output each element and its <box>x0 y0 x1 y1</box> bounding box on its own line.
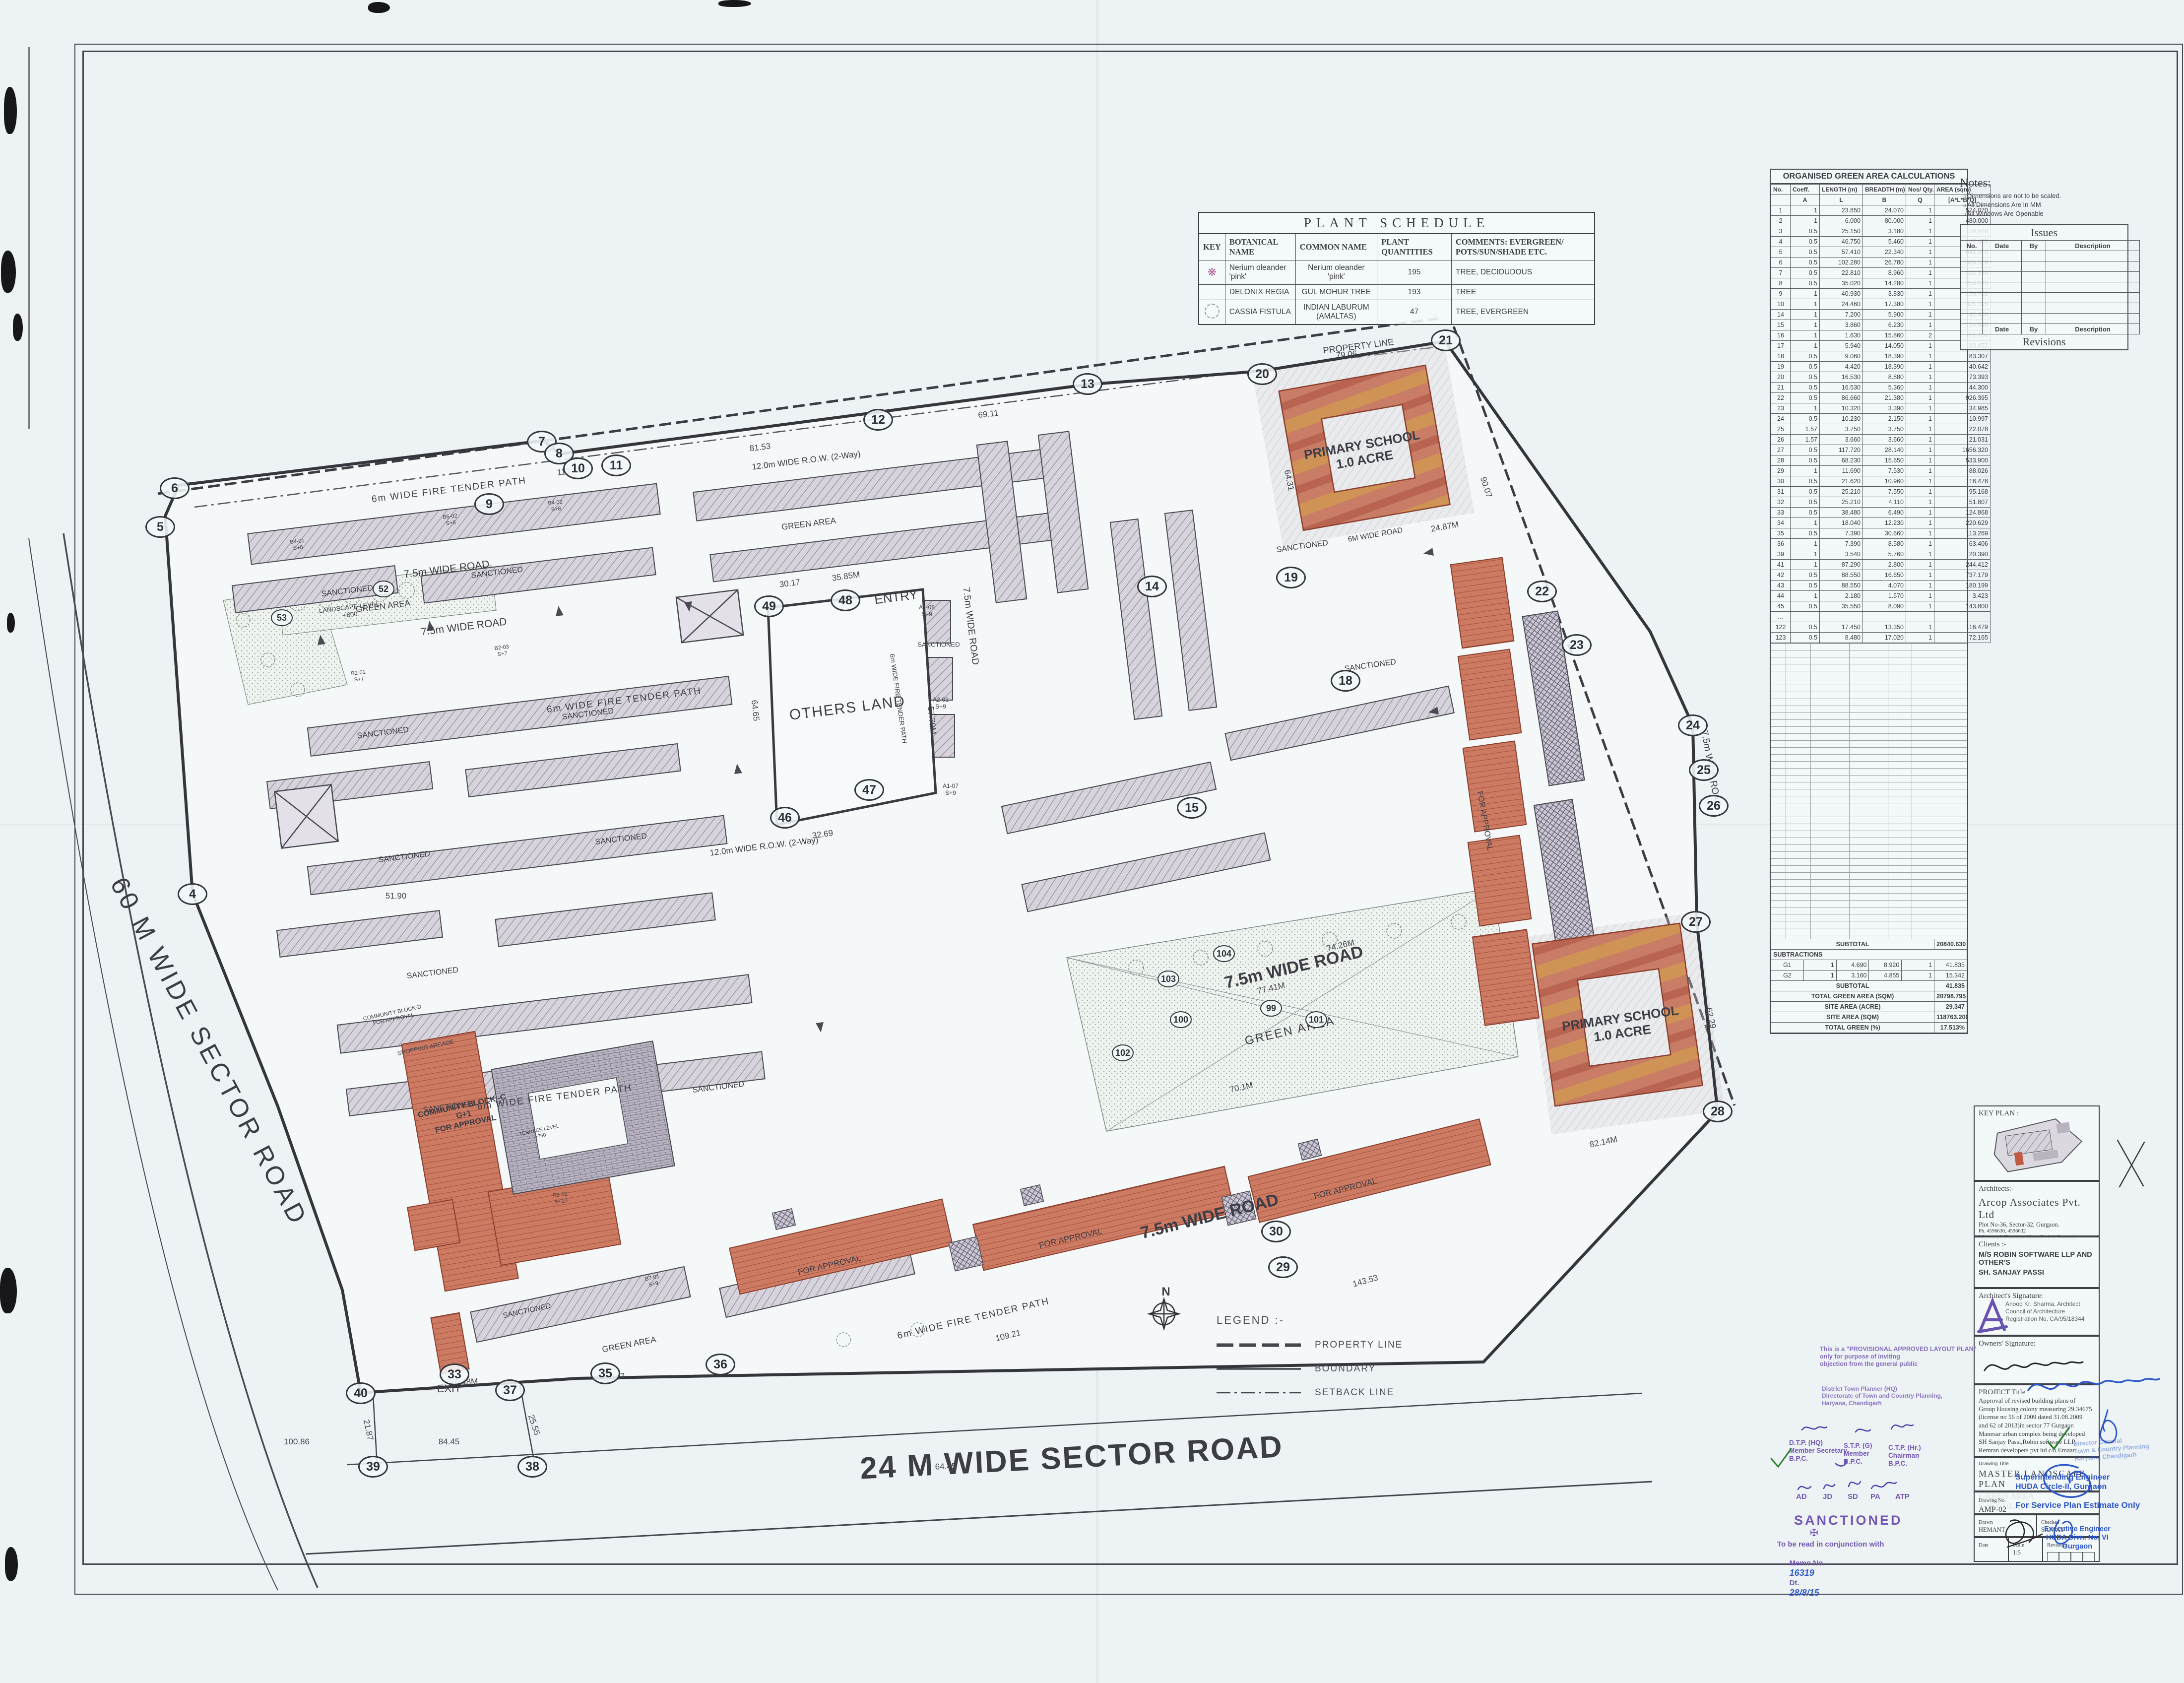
boundary-node: 52 <box>373 581 394 597</box>
green-calc-cell: 57.410 <box>1820 247 1863 258</box>
key-plan-map <box>1985 1118 2089 1172</box>
green-calc-cell: 0.5 <box>1791 445 1820 455</box>
green-calc-cell: 6 <box>1771 258 1791 268</box>
green-calc-cell: 4.690 <box>1836 960 1869 971</box>
green-calc-cell: 3.160 <box>1836 971 1869 981</box>
green-calc-cell: 0.5 <box>1791 633 1820 643</box>
memo-stamp-line1: To be read in conjunction with <box>1777 1540 1884 1549</box>
green-calc-cell: 1 <box>1906 455 1934 466</box>
green-calc-cell: 1 <box>1791 205 1820 216</box>
green-calc-cell: 27 <box>1771 445 1791 455</box>
legend-setback-line-sample <box>1217 1390 1301 1396</box>
issues-empty-cell <box>1961 261 1983 272</box>
green-calc-cell: 20798.795 <box>1934 991 1967 1002</box>
green-calc-cell: 34.985 <box>1934 403 1991 414</box>
green-calc-row: 80.535.02014.2801250.043 <box>1771 278 1991 289</box>
green-calc-cell: 31 <box>1771 487 1791 497</box>
green-calc-cell: 4.420 <box>1820 362 1863 372</box>
green-calc-cell: 1 <box>1906 622 1934 633</box>
drawn-label: Drawn <box>1979 1520 1993 1525</box>
legend-item: PROPERTY LINE <box>1217 1340 1445 1351</box>
green-calc-cell: 4 <box>1771 237 1791 247</box>
green-calc-cell: 23.850 <box>1820 205 1863 216</box>
revision-cell <box>2083 1552 2095 1562</box>
green-calc-total-row: SITE AREA (ACRE)29.347 <box>1771 1002 1967 1012</box>
green-calc-cell: SUBTOTAL <box>1771 981 1934 991</box>
green-calc-cell: 72.165 <box>1934 633 1991 643</box>
green-calc-cell: 1 <box>1791 310 1820 320</box>
green-calc-cell: 5.900 <box>1863 310 1906 320</box>
plan-label: SANCTIONED <box>917 642 960 649</box>
green-calc-cell: 1 <box>1906 528 1934 539</box>
green-calc-cell: 1 <box>1906 237 1934 247</box>
green-calc-cell: 8.480 <box>1820 633 1863 643</box>
green-calc-row: 1611.63015.860251.704 <box>1771 330 1991 341</box>
green-calc-cell: 35.550 <box>1820 601 1863 612</box>
boundary-node: 10 <box>563 457 593 479</box>
green-calc-cell: 116.479 <box>1934 622 1991 633</box>
green-calc-cell: 1 <box>1906 591 1934 601</box>
boundary-node: 22 <box>1527 581 1557 602</box>
green-calc-cell: 3.860 <box>1820 320 1863 330</box>
green-calc-cell: 1 <box>1906 362 1934 372</box>
dimension-label: 64.65 <box>749 700 761 721</box>
supdt-stamp-line: Superintending Engineer <box>2015 1473 2110 1482</box>
dt-handwritten: 28/8/15 <box>1790 1588 1819 1598</box>
green-calc-cell: 0.5 <box>1791 601 1820 612</box>
green-calc-cell: 40.930 <box>1820 289 1863 299</box>
green-calc-row: 40.546.7505.4601127.655 <box>1771 237 1991 247</box>
green-calc-cell: 5.360 <box>1863 383 1906 393</box>
green-calc-cell: 8.920 <box>1869 960 1902 971</box>
revision-cell <box>2059 1552 2071 1562</box>
boundary-node: 26 <box>1699 795 1729 817</box>
green-calc-cell: 1 <box>1791 403 1820 414</box>
plant-schedule-cell: 193 <box>1377 285 1452 300</box>
green-calc-cell: 88.550 <box>1820 570 1863 581</box>
plant-schedule-cell: TREE, EVERGREEN <box>1451 300 1595 325</box>
green-calc-row: 300.521.62010.9601118.478 <box>1771 476 1991 487</box>
district-town-planner-stamp: District Town Planner (HQ)Directorate of… <box>1822 1385 1942 1407</box>
green-calc-row: 9140.9303.8301156.762 <box>1771 289 1991 299</box>
green-calc-cell: 3.180 <box>1863 226 1906 237</box>
legend-boundary-line-sample <box>1217 1366 1301 1372</box>
green-calc-cell: 8.580 <box>1863 539 1906 549</box>
issues-header-row: No.DateByDescription <box>1961 241 2140 251</box>
green-calc-cell: 0.5 <box>1791 351 1820 362</box>
dimension-label: 100.86 <box>284 1437 310 1447</box>
green-calc-cell: 95.168 <box>1934 487 1991 497</box>
plant-schedule-row: CASSIA FISTULAINDIAN LABURUM (AMALTAS)47… <box>1199 300 1595 325</box>
green-calc-cell: 13.350 <box>1863 622 1906 633</box>
green-calc-cell: 118763.200 <box>1934 1012 1967 1023</box>
issues-empty-cell <box>1961 314 1983 324</box>
green-calc-cell: 1.57 <box>1791 435 1820 445</box>
green-calc-cell: 1 <box>1906 289 1934 299</box>
owners-signature-label: Owners' Signature: <box>1979 1340 2095 1348</box>
green-calc-row: 4412.1801.57013.423 <box>1771 591 1991 601</box>
green-calc-cell: 10.960 <box>1863 476 1906 487</box>
green-calc-cell: 18.040 <box>1820 518 1863 528</box>
green-calc-cell: 1 <box>1906 372 1934 383</box>
executive-engineer-stamp: Executive EngineerHUDA Divn. No. VIGurga… <box>2044 1525 2111 1551</box>
green-calc-cell: SITE AREA (SQM) <box>1771 1012 1934 1023</box>
green-calc-cell: 6.490 <box>1863 508 1906 518</box>
green-calc-cell: 33 <box>1771 508 1791 518</box>
project-title-line: Approval of revised building plans of <box>1979 1397 2095 1405</box>
boundary-node: 15 <box>1177 797 1207 819</box>
issues-empty-cell <box>2046 293 2140 303</box>
green-calc-cell: 0.5 <box>1791 372 1820 383</box>
green-calc-unread-rows <box>1771 643 1967 939</box>
green-calc-row: 200.516.5308.880173.393 <box>1771 372 1991 383</box>
green-calc-cell: 8.090 <box>1863 601 1906 612</box>
green-calc-cell: 17.380 <box>1863 299 1906 310</box>
green-calc-table: No.Coeff.LENGTH (m)BREADTH (m)Nos/ Qty.A… <box>1771 184 1991 643</box>
green-calc-cell: 1 <box>1906 226 1934 237</box>
green-calc-cell: 3.423 <box>1934 591 1991 601</box>
green-calc-total-row: TOTAL GREEN (%)17.513% <box>1771 1023 1967 1033</box>
issues-empty-row <box>1961 293 2140 303</box>
green-calc-cell: 0.5 <box>1791 508 1820 518</box>
green-calc-cell: 32 <box>1771 497 1791 508</box>
green-calc-cell: 51.807 <box>1934 497 1991 508</box>
green-calc-cell: 8.880 <box>1863 372 1906 383</box>
plan-label: B4-02 S+8 <box>548 499 564 514</box>
issues-empty-cell <box>2046 251 2140 261</box>
plant-schedule-cell: INDIAN LABURUM (AMALTAS) <box>1295 300 1377 325</box>
issues-empty-cell <box>2022 272 2046 282</box>
green-calc-cell: 2.180 <box>1820 591 1863 601</box>
green-calc-cell: 25.210 <box>1820 497 1863 508</box>
drawn-value: HEMANT <box>1979 1526 2032 1534</box>
green-calc-row: 350.57.39030.6601113.269 <box>1771 528 1991 539</box>
green-calc-cell: 7.390 <box>1820 539 1863 549</box>
green-calc-cell: 1 <box>1791 518 1820 528</box>
plant-schedule-column-header: BOTANICAL NAME <box>1225 234 1295 260</box>
exec-stamp-line: HUDA Divn. No. VI <box>2044 1534 2111 1542</box>
green-calc-cell: 2 <box>1906 330 1934 341</box>
green-calc-cell: 44 <box>1771 591 1791 601</box>
green-calc-cell: 39 <box>1771 549 1791 560</box>
green-calc-cell: 1.570 <box>1863 591 1906 601</box>
green-calc-cell: 86.660 <box>1820 393 1863 403</box>
firm-phone: Ph. 4596630, 4596632 <box>1979 1229 2095 1234</box>
boundary-node: 13 <box>1073 373 1102 395</box>
green-calc-cell: 1 <box>1906 435 1934 445</box>
plant-schedule-column-header: PLANT QUANTITIES <box>1377 234 1452 260</box>
memo-no-label: Memo No. <box>1790 1559 1825 1567</box>
green-calc-cell: 87.290 <box>1820 560 1863 570</box>
architects-label: Architects:- <box>1979 1185 2095 1193</box>
green-calc-cell: 10.230 <box>1820 414 1863 424</box>
dimension-label: 84.45 <box>439 1437 460 1447</box>
green-calc-cell: 9.060 <box>1820 351 1863 362</box>
firm-name: Arcop Associates Pvt. Ltd <box>1979 1196 2095 1221</box>
green-calc-cell: 1 <box>1771 205 1791 216</box>
green-calc-cell: 5 <box>1771 247 1791 258</box>
green-calc-cell: 3.750 <box>1820 424 1863 435</box>
green-calc-cell: 0.5 <box>1791 414 1820 424</box>
green-calc-cell: 1 <box>1791 591 1820 601</box>
officer-initials: ATP <box>1895 1492 1910 1501</box>
green-calc-row: 1513.8606.230124.048 <box>1771 320 1991 330</box>
legend-item-label: SETBACK LINE <box>1315 1387 1394 1398</box>
legend-item-label: BOUNDARY <box>1315 1363 1376 1374</box>
green-calc-cell: 18 <box>1771 351 1791 362</box>
boundary-node: 14 <box>1137 576 1167 597</box>
green-calc-cell: 1 <box>1906 414 1934 424</box>
green-calc-row: 1417.2005.900142.480 <box>1771 310 1991 320</box>
green-calc-cell: 1 <box>1906 539 1934 549</box>
green-calc-cell: 15 <box>1771 320 1791 330</box>
boundary-node: 27 <box>1681 911 1711 933</box>
green-calc-cell: SUBTRACTIONS <box>1771 950 1967 960</box>
green-calc-cell: 0.5 <box>1791 570 1820 581</box>
plant-key-icon: ❋ <box>1199 260 1225 285</box>
green-calc-cell: 34 <box>1771 518 1791 528</box>
green-calc-total-row: SUBTOTAL41.835 <box>1771 981 1967 991</box>
green-calc-column-header: B <box>1863 195 1906 205</box>
green-calc-cell: 28.140 <box>1863 445 1906 455</box>
green-calc-cell: 40.642 <box>1934 362 1991 372</box>
revisions-column-header: By <box>2022 324 2046 334</box>
sanctioned-stamp: SANCTIONED <box>1794 1512 1903 1528</box>
green-calc-cell: 45 <box>1771 601 1791 612</box>
green-calc-cell: 1 <box>1791 549 1820 560</box>
green-calc-row: 1715.94014.050183.457 <box>1771 341 1991 351</box>
green-calc-cell: 41 <box>1771 560 1791 570</box>
boundary-node: 25 <box>1689 759 1719 781</box>
green-calc-cell <box>1791 612 1820 622</box>
issues-column-header: By <box>2022 241 2046 251</box>
issues-column-header: No. <box>1961 241 1983 251</box>
green-calc-row: 60.5102.28026.78011369.529 <box>1771 258 1991 268</box>
green-calc-cell: 1 <box>1791 299 1820 310</box>
green-calc-cell: … <box>1771 612 1791 622</box>
green-calc-cell: 124.868 <box>1934 508 1991 518</box>
boundary-node: 53 <box>271 609 293 626</box>
architect-stamp-name: Anoop Kr. Sharma, Architect <box>2005 1300 2095 1308</box>
green-calc-cell: 21.380 <box>1863 393 1906 403</box>
green-calc-cell: 1 <box>1906 268 1934 278</box>
green-calc-cell: 22.078 <box>1934 424 1991 435</box>
green-calc-total-row: SITE AREA (SQM)118763.200 <box>1771 1012 1967 1023</box>
exec-stamp-line: Gurgaon <box>2044 1543 2111 1551</box>
issues-empty-row <box>1961 282 2140 293</box>
green-calc-cell: 1 <box>1791 341 1820 351</box>
drawing-sheet: 60 M WIDE SECTOR ROAD24 M WIDE SECTOR RO… <box>0 0 2184 1683</box>
green-calc-cell: 1 <box>1906 341 1934 351</box>
plant-schedule-cell: TREE, DECIDUDOUS <box>1451 260 1595 285</box>
green-calc-cell: 88.550 <box>1820 581 1863 591</box>
plan-label: A1-08 S+9 <box>919 604 935 618</box>
project-title-label: PROJECT Title <box>1979 1388 2095 1397</box>
green-calc-cell: 46.750 <box>1820 237 1863 247</box>
green-calc-cell: 102.280 <box>1820 258 1863 268</box>
issues-empty-cell <box>1961 303 1983 314</box>
green-calc-cell: 41.835 <box>1934 981 1967 991</box>
green-calc-cell: 0.5 <box>1791 383 1820 393</box>
green-calc-cell: 68.230 <box>1820 455 1863 466</box>
green-calc-row: 1230.58.48017.020172.165 <box>1771 633 1991 643</box>
green-calc-cell: 28 <box>1771 455 1791 466</box>
boundary-node: 47 <box>854 779 884 801</box>
plant-schedule-cell: CASSIA FISTULA <box>1225 300 1295 325</box>
green-calc-cell: 0.5 <box>1791 497 1820 508</box>
green-calc-cell: 35.020 <box>1820 278 1863 289</box>
green-calc-column-header: Nos/ Qty. <box>1906 185 1934 195</box>
green-calc-cell: 1 <box>1906 508 1934 518</box>
revisions-title: Revisions <box>1961 334 2127 349</box>
green-calc-row: 34118.04012.2301220.629 <box>1771 518 1991 528</box>
green-calc-row: 23110.3203.390134.985 <box>1771 403 1991 414</box>
green-calc-cell: 0.5 <box>1791 622 1820 633</box>
plan-label: B4-01 S+8 <box>290 538 306 552</box>
green-calc-cell: 5.460 <box>1863 237 1906 247</box>
green-calc-cell: 1 <box>1906 560 1934 570</box>
dtp-stamp-line: Directorate of Town and Country Planning… <box>1822 1392 1942 1399</box>
green-calc-cell: 7.200 <box>1820 310 1863 320</box>
green-calc-cell: 30 <box>1771 476 1791 487</box>
green-calc-row: 10124.46017.3801425.115 <box>1771 299 1991 310</box>
owners-signature-box: Owners' Signature: <box>1974 1336 2100 1384</box>
green-calc-cell: 20 <box>1771 372 1791 383</box>
legend-title: LEGEND :- <box>1217 1314 1445 1327</box>
provisional-stamp-line: This is a "PROVISIONAL APPROVED LAYOUT P… <box>1820 1346 1977 1353</box>
plan-label: B5-02 S+8 <box>443 513 458 527</box>
green-calc-cell: 16.530 <box>1820 383 1863 393</box>
green-calc-cell: 1 <box>1791 539 1820 549</box>
green-calc-cell: 180.199 <box>1934 581 1991 591</box>
boundary-node: 101 <box>1305 1011 1327 1028</box>
issues-empty-row <box>1961 303 2140 314</box>
boundary-node: 21 <box>1431 329 1461 351</box>
plan-label: A1-07 S+9 <box>943 783 959 797</box>
green-calc-cell: 15.342 <box>1934 971 1967 981</box>
green-calc-cell: 0.5 <box>1791 581 1820 591</box>
green-calc-cell: 11.690 <box>1820 466 1863 476</box>
issues-empty-cell <box>1961 272 1983 282</box>
green-calc-cell: 533.900 <box>1934 455 1991 466</box>
scale-value: 1:5 <box>2013 1549 2038 1556</box>
green-calc-cell: 1.630 <box>1820 330 1863 341</box>
green-calc-cell: 1 <box>1906 403 1934 414</box>
plant-schedule: PLANT SCHEDULE KEYBOTANICAL NAMECOMMON N… <box>1198 212 1595 325</box>
dt-label: Dt. <box>1790 1579 1799 1587</box>
boundary-node: 18 <box>1331 670 1360 692</box>
issues-empty-cell <box>1961 251 1983 261</box>
green-calc-cell: 0.5 <box>1791 455 1820 466</box>
green-calc-cell: 8 <box>1771 278 1791 289</box>
green-calc-cell: 0.5 <box>1791 362 1820 372</box>
plant-schedule-cell: 195 <box>1377 260 1452 285</box>
green-calc-column-header: L <box>1820 195 1863 205</box>
issues-revisions-block: Issues No.DateByDescriptionDateByDescrip… <box>1960 224 2128 350</box>
green-calc-cell: SITE AREA (ACRE) <box>1771 1002 1934 1012</box>
green-calc-cell <box>1820 612 1863 622</box>
green-calc-cell: 42 <box>1771 570 1791 581</box>
green-calc-cell: 3.540 <box>1820 549 1863 560</box>
green-calc-row: 50.557.41022.3401641.270 <box>1771 247 1991 258</box>
issues-empty-cell <box>1983 261 2022 272</box>
green-calc-cell: 1 <box>1906 258 1934 268</box>
issues-empty-cell <box>1983 314 2022 324</box>
green-calc-cell: 6.000 <box>1820 216 1863 226</box>
green-calc-row: 41187.2902.8001244.412 <box>1771 560 1991 570</box>
green-calc-cell: 25.150 <box>1820 226 1863 237</box>
green-calc-cell: 1 <box>1791 320 1820 330</box>
green-calc-column-header <box>1771 195 1791 205</box>
boundary-node: 36 <box>706 1354 735 1375</box>
boundary-node: 6 <box>160 477 190 499</box>
green-calc-cell: 0.5 <box>1791 247 1820 258</box>
plant-schedule-cell: Nerium oleander 'pink' <box>1295 260 1377 285</box>
notes-block: Notes: Dimensions are not to be scaled.A… <box>1960 177 2126 219</box>
green-calc-cell: 22.810 <box>1820 268 1863 278</box>
green-calc-column-header: A <box>1791 195 1820 205</box>
key-plan-label: KEY PLAN : <box>1979 1109 2095 1118</box>
green-calc-cell: 3.830 <box>1863 289 1906 299</box>
green-calc-row: 180.59.06018.390183.307 <box>1771 351 1991 362</box>
issues-empty-cell <box>2022 293 2046 303</box>
green-calc-cell: TOTAL GREEN AREA (SQM) <box>1771 991 1934 1002</box>
green-calc-cell: 3.660 <box>1820 435 1863 445</box>
plant-schedule-cell: Nerium oleander 'pink' <box>1225 260 1295 285</box>
green-calc-cell <box>1906 612 1934 622</box>
green-calc-cell: 10.320 <box>1820 403 1863 414</box>
green-calc-row: 70.522.8108.9601102.189 <box>1771 268 1991 278</box>
green-calc-cell: 14 <box>1771 310 1791 320</box>
green-calc-cell: 0.5 <box>1791 476 1820 487</box>
green-calc-cell: 1 <box>1791 560 1820 570</box>
green-calc-cell: 3.750 <box>1863 424 1906 435</box>
green-calc-cell: 9 <box>1771 289 1791 299</box>
officer-initials: SD <box>1848 1492 1858 1501</box>
plant-schedule-column-header: COMMON NAME <box>1295 234 1377 260</box>
green-calc-cell: 1 <box>1791 330 1820 341</box>
plant-schedule-column-header: KEY <box>1199 234 1225 260</box>
green-calc-column-header: Q <box>1906 195 1934 205</box>
green-calc-total-row: TOTAL GREEN AREA (SQM)20798.795 <box>1771 991 1967 1002</box>
green-calc-cell: 41.835 <box>1934 960 1967 971</box>
green-calc-cell: 7 <box>1771 268 1791 278</box>
green-calc-cell: 16 <box>1771 330 1791 341</box>
service-plan-stamp: For Service Plan Estimate Only <box>2015 1500 2140 1510</box>
green-calc-row: 251.573.7503.750122.078 <box>1771 424 1991 435</box>
clients-box: Clients :- M/S ROBIN SOFTWARE LLP AND OT… <box>1974 1236 2100 1288</box>
boundary-node: 11 <box>601 454 631 476</box>
green-calc-cell: 1 <box>1906 393 1934 403</box>
issues-empty-cell <box>2022 282 2046 293</box>
green-calc-cell: G1 <box>1771 960 1804 971</box>
boundary-node: 20 <box>1247 363 1277 385</box>
green-calc-cell: 1 <box>1906 445 1934 455</box>
green-calc-total-row: SUBTOTAL20840.630 <box>1771 939 1967 950</box>
legend-item: BOUNDARY <box>1217 1363 1445 1374</box>
client-name-1: M/S ROBIN SOFTWARE LLP AND OTHER'S <box>1979 1251 2095 1267</box>
green-calc-cell: 18.390 <box>1863 362 1906 372</box>
issues-empty-row <box>1961 314 2140 324</box>
green-calc-cell: 6.230 <box>1863 320 1906 330</box>
green-calc-row: 3913.5405.760120.390 <box>1771 549 1991 560</box>
project-title-line: and 62 of 2013)in sector 77 Gurgaon <box>1979 1422 2095 1430</box>
green-calc-cell: 15.860 <box>1863 330 1906 341</box>
boundary-node: 40 <box>346 1382 376 1404</box>
green-calc-cell: 1 <box>1906 351 1934 362</box>
green-calc-total-row: SUBTRACTIONS <box>1771 950 1967 960</box>
green-calc-header-row: No.Coeff.LENGTH (m)BREADTH (m)Nos/ Qty.A… <box>1771 185 1991 195</box>
